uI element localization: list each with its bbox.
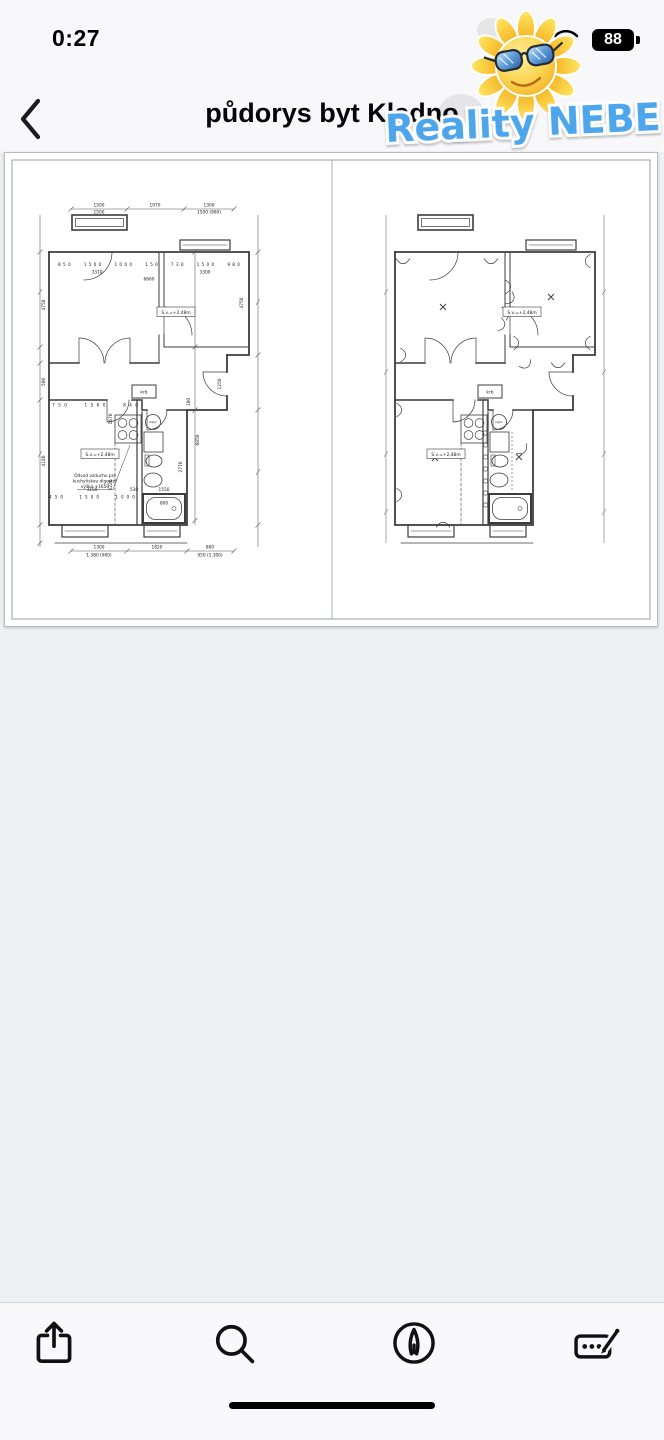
floor-plan-drawing: 1500 1970 1300 1500 1500 (960) 850 1500 … [5, 153, 657, 626]
svg-text:S.v.=+2,48m: S.v.=+2,48m [431, 452, 460, 458]
svg-text:4750: 4750 [239, 297, 245, 308]
svg-text:1820: 1820 [152, 545, 163, 551]
svg-text:1250: 1250 [217, 378, 223, 389]
svg-text:1500: 1500 [94, 203, 105, 209]
svg-text:výška +1650: výška +1650 [81, 483, 110, 490]
search-button[interactable] [208, 1317, 260, 1369]
svg-text:160: 160 [186, 398, 192, 406]
svg-text:530: 530 [130, 487, 138, 493]
svg-text:1970: 1970 [150, 203, 161, 209]
svg-text:S.v.=+2,48m: S.v.=+2,48m [507, 310, 536, 316]
bottom-toolbar [0, 1302, 664, 1440]
svg-text:krb: krb [486, 390, 493, 396]
floor-plan-right: S.v.=+2,48m S.v.=+2,48m krb bojler [384, 215, 606, 543]
drawing-frame [12, 160, 650, 619]
battery-icon: 88 [592, 29, 634, 51]
dimension-chains [38, 207, 261, 554]
share-button[interactable] [28, 1317, 80, 1369]
svg-text:1300: 1300 [204, 203, 215, 209]
svg-text:4180: 4180 [41, 455, 47, 466]
navigate-icon [388, 1317, 440, 1369]
status-time: 0:27 [52, 25, 100, 52]
svg-text:950 (1.300): 950 (1.300) [197, 553, 223, 559]
navigate-button[interactable] [388, 1317, 440, 1369]
svg-text:Odvod vzduchu pro: Odvod vzduchu pro [74, 473, 116, 479]
search-icon [208, 1317, 260, 1369]
home-indicator[interactable] [229, 1402, 435, 1409]
share-icon [28, 1317, 80, 1369]
floor-plan-left: 1500 1970 1300 1500 1500 (960) 850 1500 … [38, 203, 261, 559]
watermark-text: Reality NEBE [384, 98, 661, 151]
svg-text:1300: 1300 [94, 545, 105, 551]
svg-text:bojler: bojler [149, 420, 157, 424]
svg-text:800: 800 [206, 545, 214, 551]
svg-text:2770: 2770 [178, 461, 184, 472]
svg-text:1500 (960): 1500 (960) [197, 210, 221, 216]
svg-text:750 1560 840: 750 1560 840 [52, 403, 138, 409]
svg-text:1670: 1670 [108, 413, 114, 424]
watermark-brand: Reality NEBE [378, 98, 664, 152]
svg-text:kuchyňskou digestoř: kuchyňskou digestoř [73, 478, 118, 485]
svg-text:500: 500 [41, 378, 47, 386]
document-page[interactable]: 1500 1970 1300 1500 1500 (960) 850 1500 … [4, 152, 658, 627]
phone-screen: 0:27 88 půdorys byt Kladno [0, 0, 664, 1440]
svg-text:krb: krb [140, 390, 147, 396]
markup-icon [570, 1317, 622, 1369]
svg-text:4750: 4750 [41, 299, 47, 310]
svg-text:S.v.=+2,48m: S.v.=+2,48m [161, 310, 190, 316]
svg-text:800: 800 [160, 501, 168, 507]
svg-text:S.v.=+2,48m: S.v.=+2,48m [85, 452, 114, 458]
svg-text:450 1500 1000: 450 1500 1000 [49, 495, 135, 501]
svg-text:bojler: bojler [495, 420, 503, 424]
markup-button[interactable] [570, 1317, 622, 1369]
svg-text:3300: 3300 [200, 270, 211, 276]
svg-text:3310: 3310 [92, 270, 103, 276]
svg-text:1500: 1500 [94, 210, 105, 216]
svg-text:6660: 6660 [144, 277, 155, 283]
svg-text:1550: 1550 [159, 487, 170, 493]
back-button[interactable] [14, 96, 46, 142]
svg-text:850 1500 1000 150 730: 850 1500 1000 150 730 1500 980 [58, 262, 240, 268]
svg-text:6850: 6850 [195, 434, 201, 445]
svg-text:1.380 (900): 1.380 (900) [86, 553, 112, 559]
battery-percent: 88 [604, 31, 622, 48]
battery-nub [636, 36, 640, 44]
